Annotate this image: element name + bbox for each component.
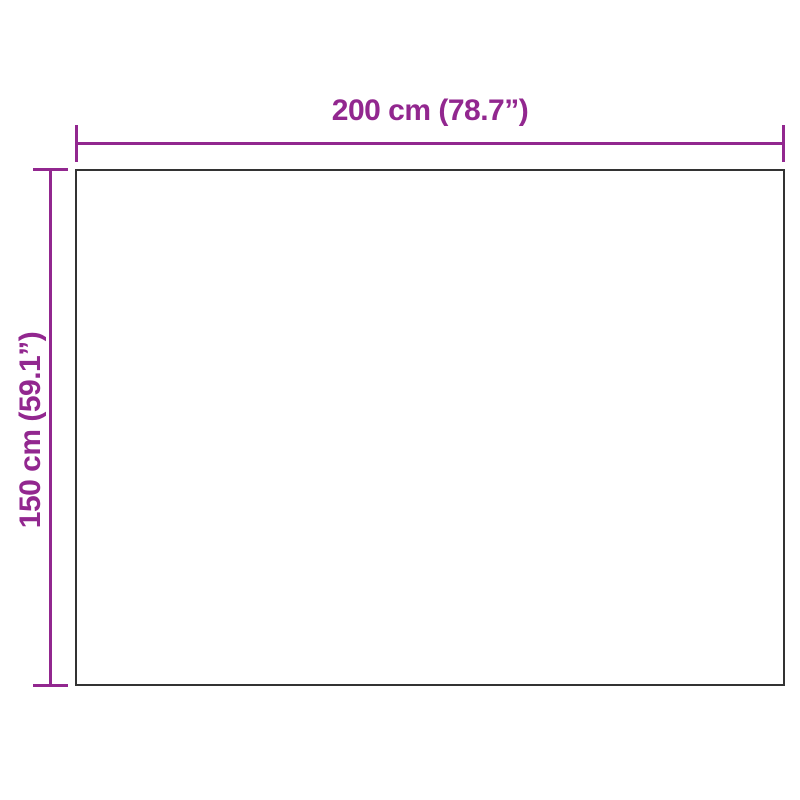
width-dimension-label: 200 cm (78.7”) [75,94,785,129]
product-outline-rect [75,169,785,686]
height-dimension-line [49,168,52,687]
width-dimension-right-tick [782,125,785,162]
height-dimension-bottom-tick [33,684,68,687]
height-dimension-label: 150 cm (59.1”) [14,332,49,528]
height-dimension-top-tick [33,168,68,171]
dimension-diagram: 200 cm (78.7”) 150 cm (59.1”) [0,0,800,800]
width-dimension-left-tick [75,125,78,162]
width-dimension-line [75,142,785,145]
